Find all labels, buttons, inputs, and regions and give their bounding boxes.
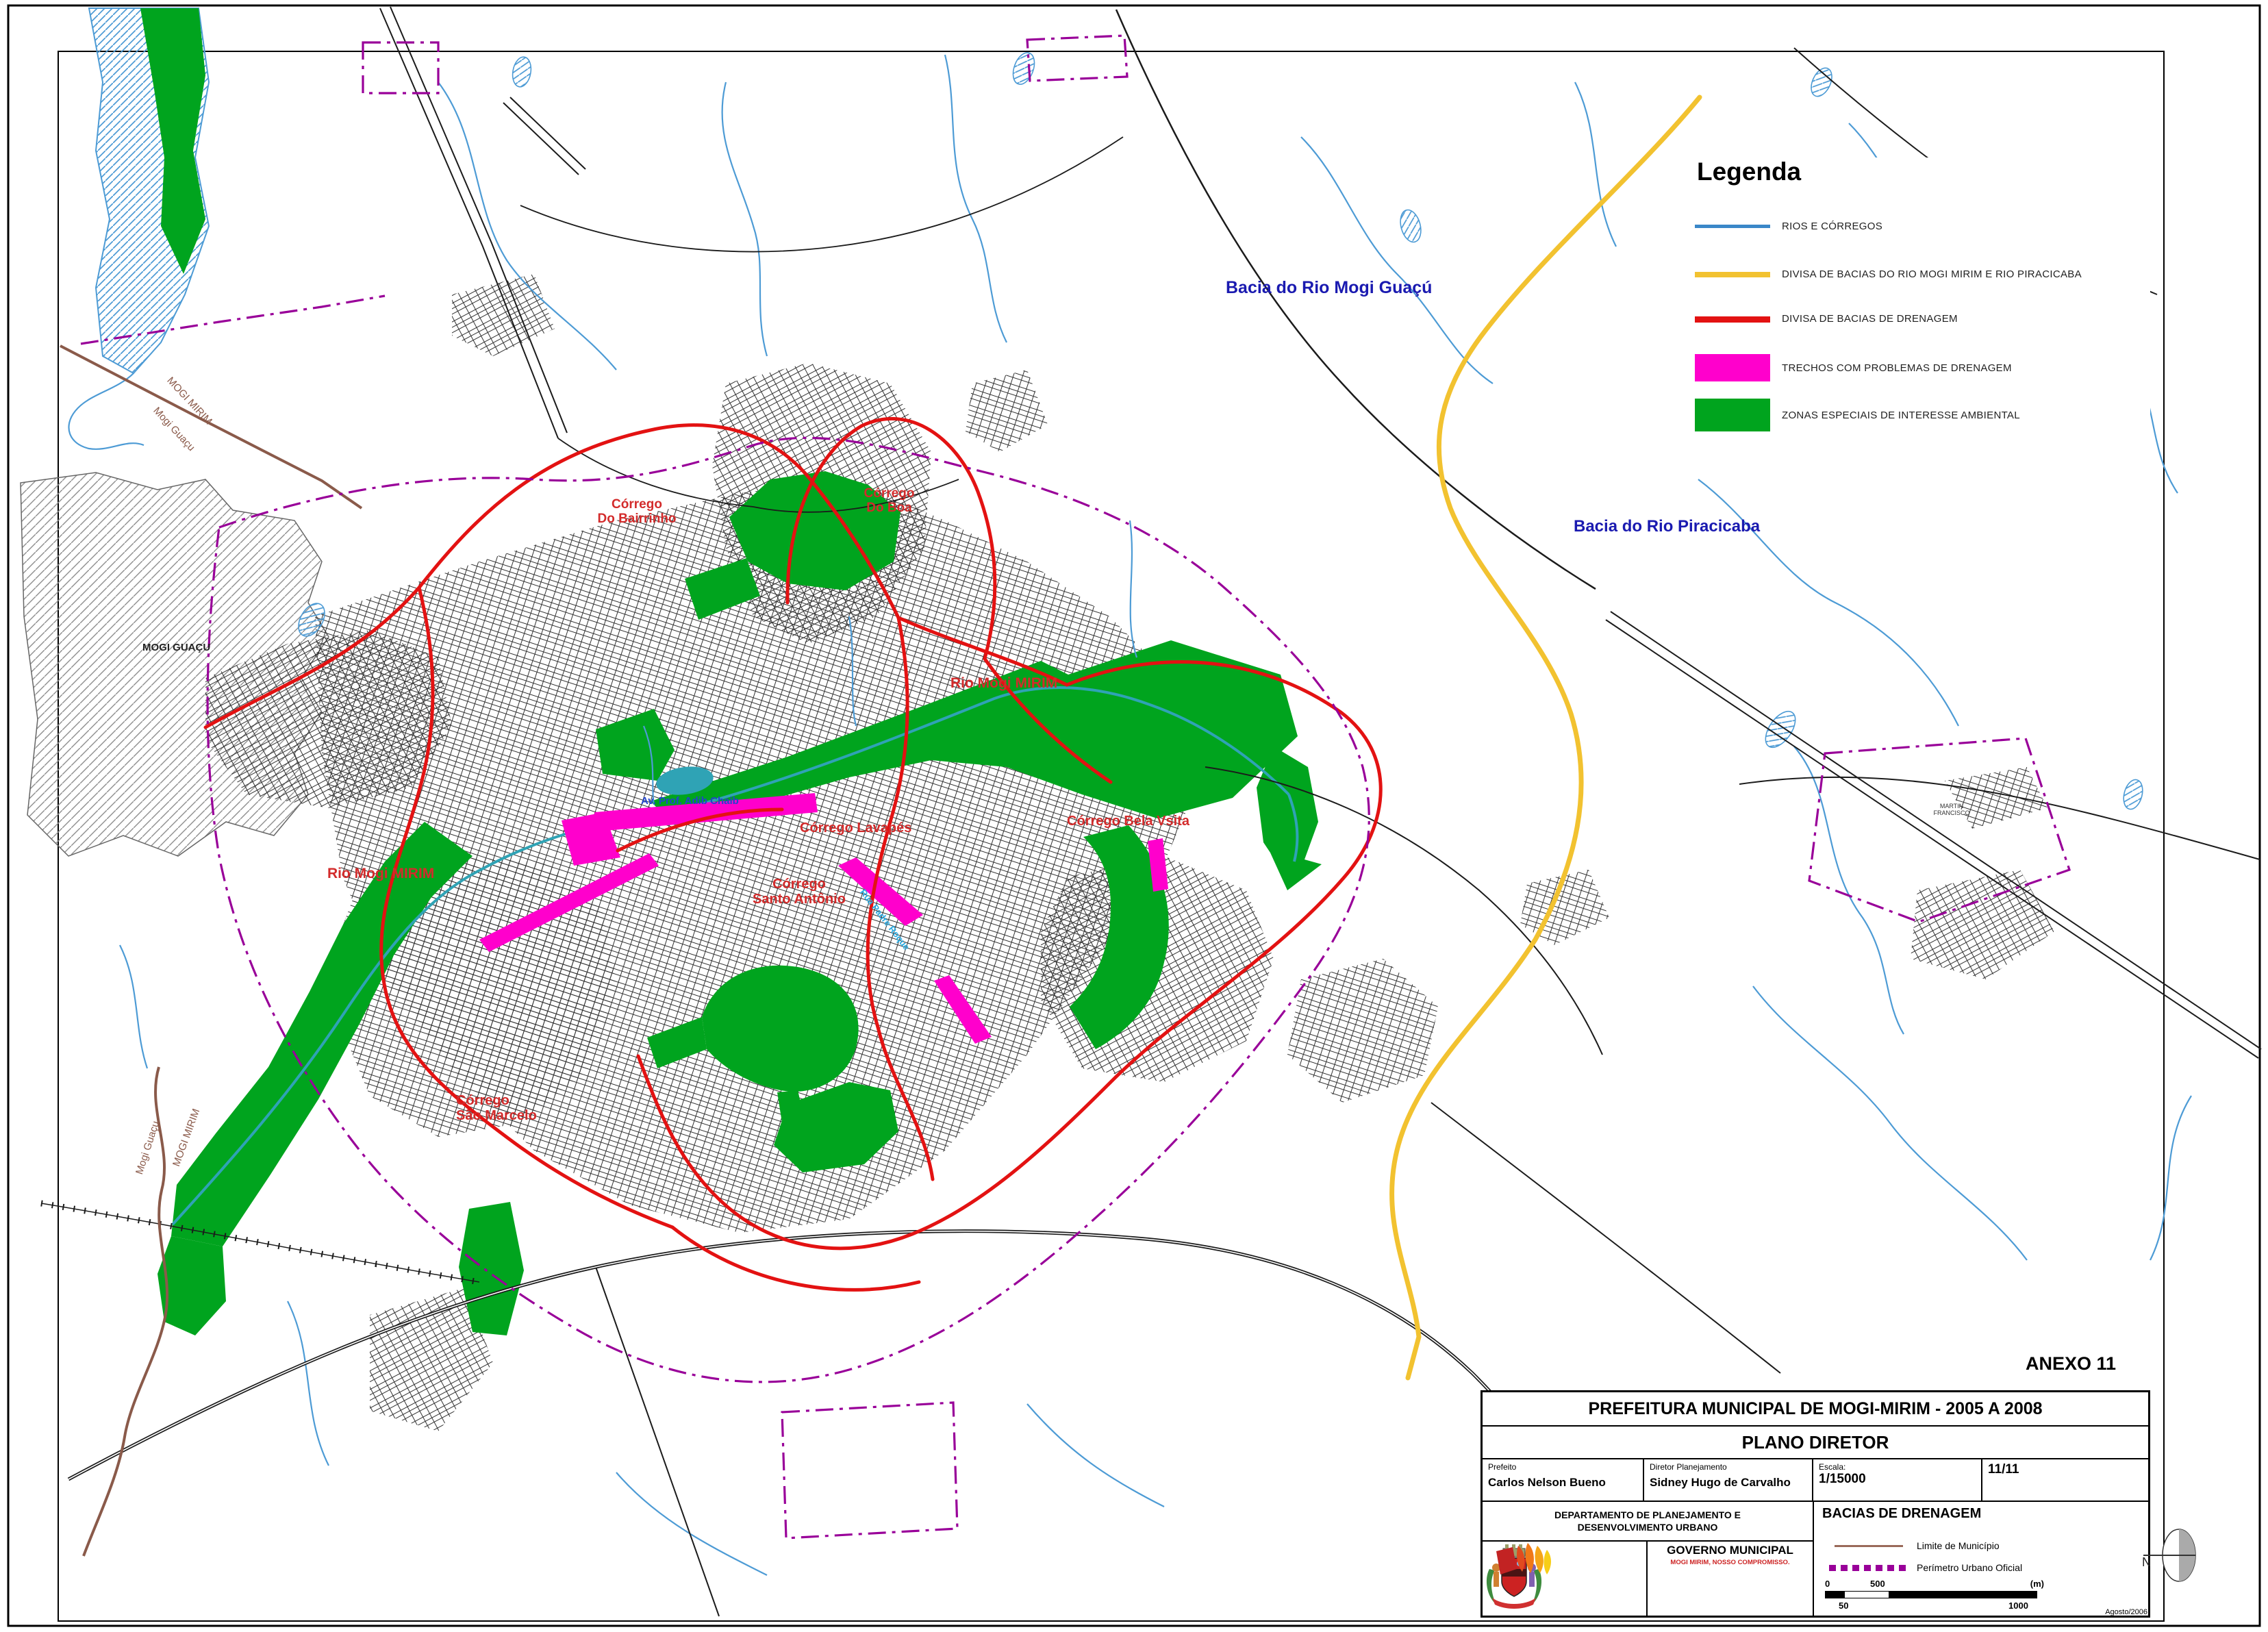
escala-cell: Escala: 1/15000 — [1813, 1459, 1982, 1501]
title-block-right: BACIAS DE DRENAGEM Limite de Município P… — [1814, 1502, 2150, 1618]
label-corrego-bela-vista: Córrego Bela Vsita — [1067, 814, 1189, 829]
diretor-name: Sidney Hugo de Carvalho — [1650, 1476, 1806, 1490]
anexo-label: ANEXO 11 — [2026, 1353, 2116, 1374]
label-rio-mogi-mirim-west: Rio Mogi MIRIM — [327, 866, 434, 882]
title-block-plan: PLANO DIRETOR — [1483, 1427, 2148, 1459]
sheet-number: 11/11 — [1988, 1462, 2019, 1477]
label-corrego-bairrinho: Córrego Do Bairrinho — [575, 497, 698, 527]
label-martin-francisco: MARTIN FRANCISCO — [1917, 803, 1986, 816]
label-corrego-santo-antonio: Córrego Santo Antônio — [741, 877, 857, 907]
north-arrow-icon: N — [2141, 1527, 2200, 1584]
government-logo-cell: GOVERNO MUNICIPAL MOGI MIRIM, NOSSO COMP… — [1648, 1542, 1813, 1618]
legend-title: Legenda — [1697, 158, 1801, 186]
scale-bar-bar — [1825, 1591, 2037, 1598]
escala-value: 1/15000 — [1819, 1472, 1866, 1486]
prefeito-name: Carlos Nelson Bueno — [1488, 1476, 1637, 1490]
perimetro-dash-swatch — [1829, 1565, 1906, 1571]
title-block-people-row: Prefeito Carlos Nelson Bueno Diretor Pla… — [1483, 1459, 2148, 1502]
basin-divide-line-swatch — [1695, 272, 1770, 277]
rivers-line-swatch — [1695, 225, 1770, 228]
map-date: Agosto/2006 — [2105, 1608, 2147, 1616]
prefeito-cell: Prefeito Carlos Nelson Bueno — [1483, 1459, 1644, 1501]
map-sheet: ; — [0, 0, 2268, 1632]
sheet-cell: 11/11 — [1982, 1459, 2148, 1501]
government-name: GOVERNO MUNICIPAL — [1648, 1544, 1813, 1557]
drainage-divide-line-swatch — [1695, 316, 1770, 323]
diretor-cell: Diretor Planejamento Sidney Hugo de Carv… — [1644, 1459, 1813, 1501]
label-bacia-piracicaba: Bacia do Rio Piracicaba — [1574, 518, 1760, 536]
government-slogan: MOGI MIRIM, NOSSO COMPROMISSO. — [1648, 1559, 1813, 1566]
environmental-zone-swatch — [1695, 399, 1770, 431]
label-corrego-sao-marcelo: Córrego São Marcelo — [456, 1093, 537, 1124]
label-av-adib-chaib: Av. Prof. Adib Chaib — [641, 796, 739, 807]
flame-logo-icon — [1483, 1542, 1559, 1580]
north-letter: N — [2142, 1555, 2151, 1569]
problem-stretch-swatch — [1695, 354, 1770, 381]
label-corrego-lavapes: Córrego Lavapés — [800, 820, 911, 836]
title-block: PREFEITURA MUNICIPAL DE MOGI-MIRIM - 200… — [1480, 1390, 2150, 1618]
department-name: DEPARTAMENTO DE PLANEJAMENTO E DESENVOLV… — [1483, 1502, 1813, 1542]
title-block-left: DEPARTAMENTO DE PLANEJAMENTO E DESENVOLV… — [1483, 1502, 1814, 1618]
label-mogi-guacu-area: MOGI GUAÇU — [142, 642, 210, 654]
map-title: BACIAS DE DRENAGEM — [1822, 1506, 1981, 1522]
label-rio-mogi-mirim-center: Rio Mogi MIRIM — [950, 675, 1057, 692]
label-bacia-mogi-guacu: Bacia do Rio Mogi Guaçú — [1226, 278, 1432, 297]
limite-line-swatch — [1835, 1545, 1903, 1547]
title-block-org: PREFEITURA MUNICIPAL DE MOGI-MIRIM - 200… — [1483, 1392, 2148, 1427]
label-corrego-do-boa: Córrego Do Boa — [840, 486, 939, 516]
legend-panel: Legenda RIOS E CÓRREGOS DIVISA DE BACIAS… — [1678, 158, 2150, 459]
